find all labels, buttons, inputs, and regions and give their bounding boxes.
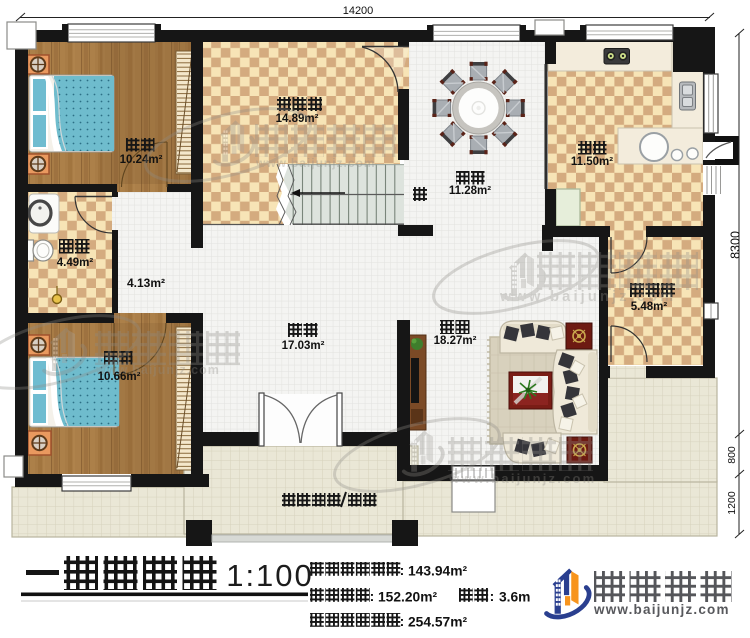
svg-text::: : <box>400 562 405 578</box>
svg-text:www.baijunjz.com: www.baijunjz.com <box>95 363 220 377</box>
svg-text:www.baijunjz.com: www.baijunjz.com <box>448 471 596 486</box>
svg-text:143.94m²: 143.94m² <box>408 564 467 579</box>
svg-text::: : <box>490 588 495 604</box>
svg-text:18.27m²: 18.27m² <box>434 335 477 347</box>
svg-text:14.89m²: 14.89m² <box>276 113 319 125</box>
svg-text:www.baijunjz.com: www.baijunjz.com <box>499 289 676 305</box>
svg-text:14200: 14200 <box>343 5 374 17</box>
svg-text:3.6m: 3.6m <box>499 590 530 605</box>
svg-text:11.28m²: 11.28m² <box>449 185 491 197</box>
svg-text:www.baijunjz.com: www.baijunjz.com <box>255 156 376 170</box>
svg-text:4.49m²: 4.49m² <box>57 257 94 269</box>
svg-text:152.20m²: 152.20m² <box>378 590 437 605</box>
svg-text:4.13m²: 4.13m² <box>127 276 165 290</box>
svg-text:254.57m²: 254.57m² <box>408 615 467 630</box>
svg-text:17.03m²: 17.03m² <box>282 340 325 352</box>
svg-text:11.50m²: 11.50m² <box>571 156 613 168</box>
svg-text:1200: 1200 <box>726 491 738 515</box>
svg-text:8300: 8300 <box>729 231 743 259</box>
svg-text:1:100: 1:100 <box>226 558 314 593</box>
svg-text::: : <box>370 588 375 604</box>
svg-text:10.24m²: 10.24m² <box>120 154 163 166</box>
svg-text::: : <box>400 613 405 629</box>
svg-text:800: 800 <box>726 446 738 464</box>
svg-text:www.baijunjz.com: www.baijunjz.com <box>593 602 730 617</box>
